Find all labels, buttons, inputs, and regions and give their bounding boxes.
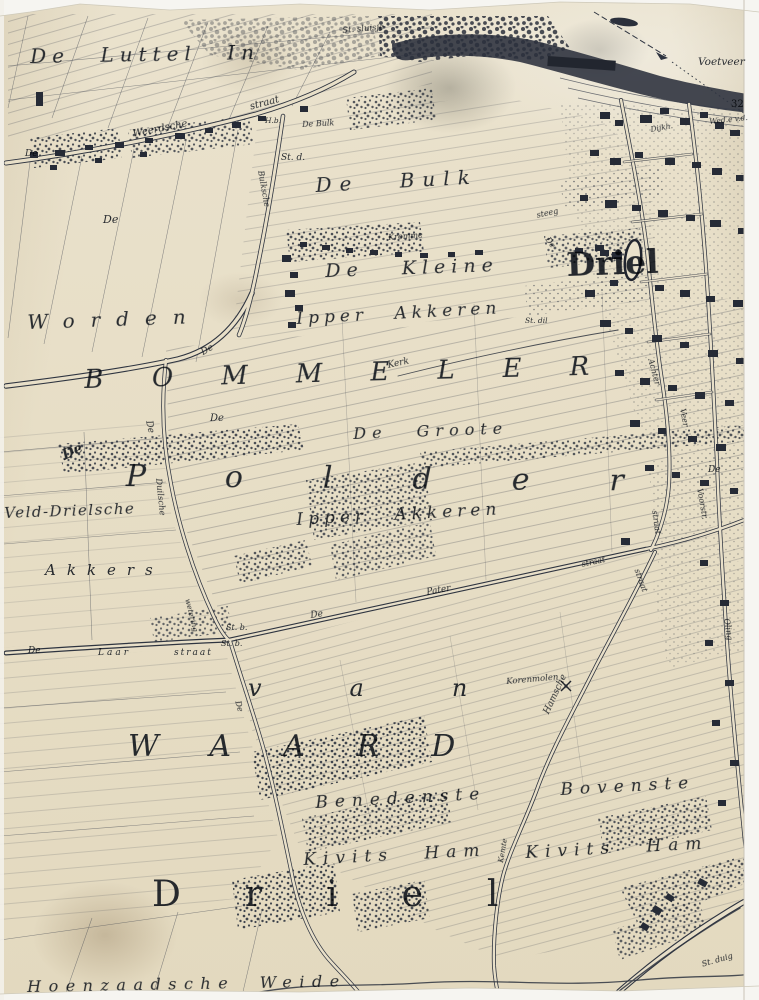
map-linework: [0, 0, 759, 1000]
map-screenshot: De Luttel InSt. sluisjeVoetveer32Wed.e v…: [0, 0, 759, 1000]
boat-icon: [610, 16, 639, 28]
